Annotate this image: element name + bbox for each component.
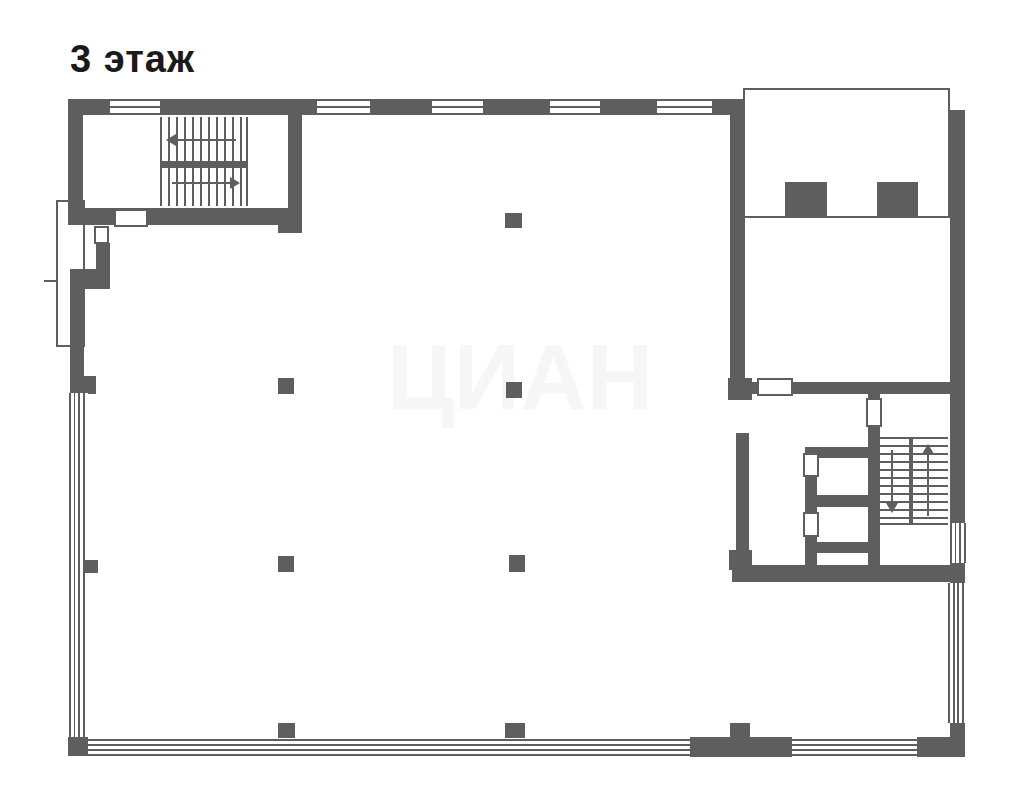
wall-room-divider-3 — [805, 542, 868, 553]
annex-block-1 — [785, 182, 827, 218]
stair2-center-divider — [909, 437, 913, 525]
wall-left-column-block — [70, 376, 96, 394]
stair1-mid-landing-divider — [160, 161, 248, 168]
window-bottom-curtainwall-2 — [792, 739, 917, 756]
wall-right-upper — [950, 110, 965, 523]
column-bottom-right — [730, 723, 750, 738]
wall-stair1-right — [288, 115, 302, 210]
floor-plan-canvas: 3 этаж ЦИАН — [0, 0, 1024, 805]
wall-h-stair2-top-left-stub — [728, 382, 758, 394]
wall-bottom-left-corner — [68, 737, 88, 756]
left-bay-tick — [44, 280, 57, 282]
arrow-left-icon — [166, 134, 176, 146]
annex-block-2 — [877, 182, 918, 218]
column-top-center — [505, 213, 522, 228]
window-top-3 — [432, 99, 483, 115]
column-mid-left — [278, 378, 294, 394]
wall-top — [68, 99, 745, 115]
column-lower-center — [509, 555, 525, 572]
wall-room-divider-2 — [805, 495, 868, 507]
stair2-arrow-up-shaft — [927, 452, 929, 516]
column-left-wall — [85, 560, 98, 573]
door-left-side — [94, 226, 109, 244]
window-top-5 — [657, 99, 712, 115]
window-bottom-curtainwall-1 — [88, 739, 690, 756]
window-right-long — [948, 583, 965, 723]
stair2-arrow-down-shaft — [891, 450, 893, 505]
column-bottom-center — [505, 723, 525, 738]
door-room-2 — [803, 512, 819, 537]
top-right-annex-outline — [743, 88, 950, 218]
door-stairwell — [866, 398, 882, 427]
arrow-right-icon — [230, 177, 240, 189]
door-stair1-bottom — [114, 209, 148, 227]
window-top-2 — [317, 99, 370, 115]
stair1-arrow-up-shaft — [176, 139, 236, 141]
page-title: 3 этаж — [70, 38, 195, 81]
wall-corridor — [736, 433, 749, 567]
door-corridor-top — [757, 378, 793, 396]
wall-bottom-right-corner — [917, 737, 965, 757]
column-bottom-left — [278, 723, 295, 738]
column-mid-center — [506, 382, 522, 398]
column-lower-left — [278, 556, 294, 572]
stair2-left-edge — [878, 437, 880, 525]
wall-left-door-stub — [96, 243, 110, 272]
door-room-1 — [803, 453, 819, 477]
window-top-4 — [550, 99, 600, 115]
arrow-up-icon — [922, 444, 934, 454]
window-top-1 — [110, 99, 160, 115]
left-bay-outline — [56, 200, 85, 347]
wall-bottom-middle — [690, 737, 792, 757]
stair1-arrow-down-shaft — [172, 182, 230, 184]
arrow-down-icon — [886, 503, 898, 513]
window-right-small — [950, 523, 966, 563]
wall-stair1-corner-block — [278, 208, 302, 233]
watermark: ЦИАН — [380, 322, 660, 432]
wall-south-right-block — [732, 565, 965, 582]
wall-stair1-bottom — [68, 208, 302, 225]
